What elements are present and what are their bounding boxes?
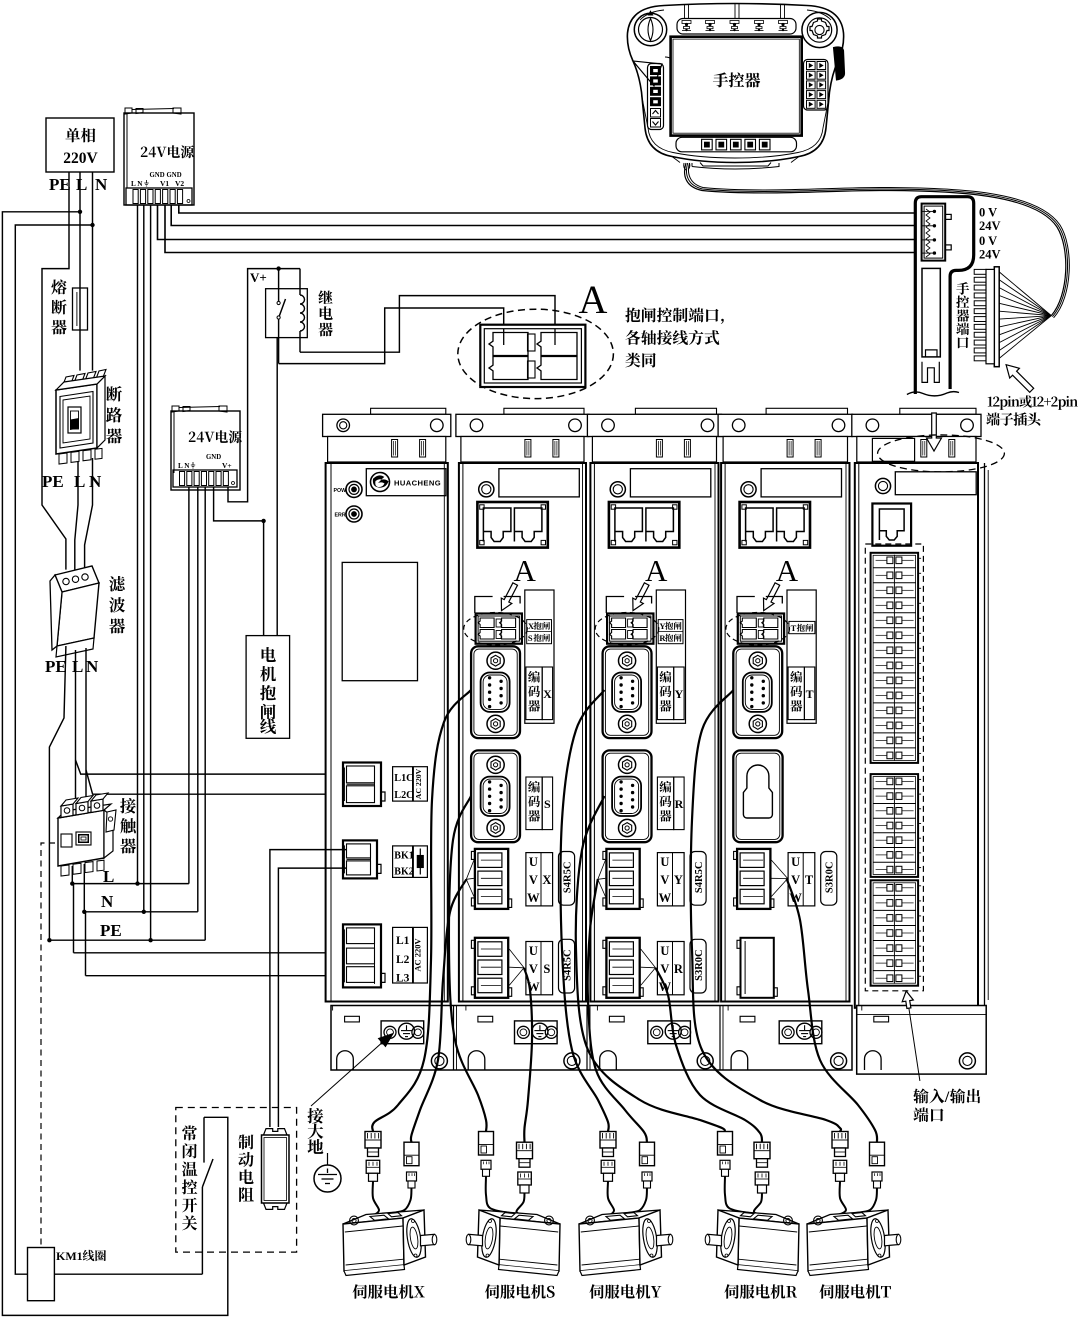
svg-text:S: S [543,962,550,976]
svg-text:L2: L2 [396,954,410,966]
svg-text:V: V [660,873,669,887]
svg-text:T: T [805,873,814,887]
svg-text:Y: Y [674,873,683,887]
svg-text:U: U [660,944,669,958]
svg-text:/: / [944,1089,950,1106]
svg-text:PE: PE [100,921,122,940]
svg-text:V2: V2 [175,179,184,188]
svg-text:L: L [74,472,85,491]
svg-text:S: S [528,633,533,643]
svg-text:N: N [86,657,99,676]
svg-text:AC 220V: AC 220V [412,937,422,971]
svg-text:220V: 220V [63,150,98,167]
svg-text:X: X [542,873,551,887]
svg-text:S3R0C: S3R0C [825,862,836,894]
svg-text:S3R0C: S3R0C [694,949,705,981]
svg-text:ERR: ERR [335,513,346,519]
svg-text:KM1: KM1 [56,1249,83,1263]
svg-text:BK1: BK1 [394,851,413,862]
svg-text:A: A [776,553,799,588]
svg-text:24V: 24V [979,248,1001,262]
svg-text:S4R5C: S4R5C [694,862,705,894]
svg-text:BK2: BK2 [394,867,413,878]
svg-text:A: A [514,553,537,588]
svg-text:A: A [579,277,608,322]
svg-text:L1: L1 [396,935,410,947]
svg-text:L2C: L2C [394,790,413,801]
svg-text:V: V [529,873,538,887]
svg-text:N: N [89,472,102,491]
svg-text:L N: L N [131,180,143,188]
svg-text:U: U [791,855,800,869]
svg-text:L1C: L1C [394,773,413,784]
svg-text:A: A [645,553,668,588]
svg-text:S: S [544,797,551,811]
svg-text:GND: GND [206,454,221,461]
svg-text:U: U [529,944,538,958]
svg-text:T: T [791,623,797,633]
svg-text:AC 220V: AC 220V [414,768,423,799]
svg-text:0 V: 0 V [979,205,997,219]
svg-text:T: T [806,687,814,701]
svg-text:R: R [674,962,684,976]
svg-text:N: N [101,892,114,911]
svg-text:PE: PE [45,657,67,676]
svg-text:PE: PE [42,472,64,491]
svg-text:V+: V+ [222,461,232,470]
svg-text:L N: L N [178,462,190,470]
svg-text:PE: PE [49,175,71,194]
svg-text:R: R [675,797,684,811]
svg-text:Y: Y [675,687,684,701]
svg-text:L: L [72,657,83,676]
svg-text:S4R5C: S4R5C [562,862,573,894]
svg-text:N: N [95,175,108,194]
svg-text:V1: V1 [160,179,169,188]
svg-text:U: U [529,855,538,869]
svg-text:GND: GND [150,172,165,179]
svg-text:V: V [791,873,800,887]
svg-text:X: X [543,687,552,701]
svg-text:V: V [529,962,538,976]
svg-text:W: W [659,891,672,905]
svg-text:L3: L3 [396,973,410,985]
svg-text:W: W [527,891,540,905]
svg-text:POW: POW [334,488,347,494]
svg-text:HUACHENG: HUACHENG [394,479,441,488]
svg-text:0 V: 0 V [979,234,997,248]
svg-text:V: V [660,962,669,976]
svg-text:L: L [76,175,87,194]
svg-text:GND: GND [167,172,182,179]
svg-text:24V: 24V [979,219,1001,233]
svg-text:Y: Y [659,621,665,631]
svg-text:U: U [660,855,669,869]
svg-text:V+: V+ [250,270,267,285]
